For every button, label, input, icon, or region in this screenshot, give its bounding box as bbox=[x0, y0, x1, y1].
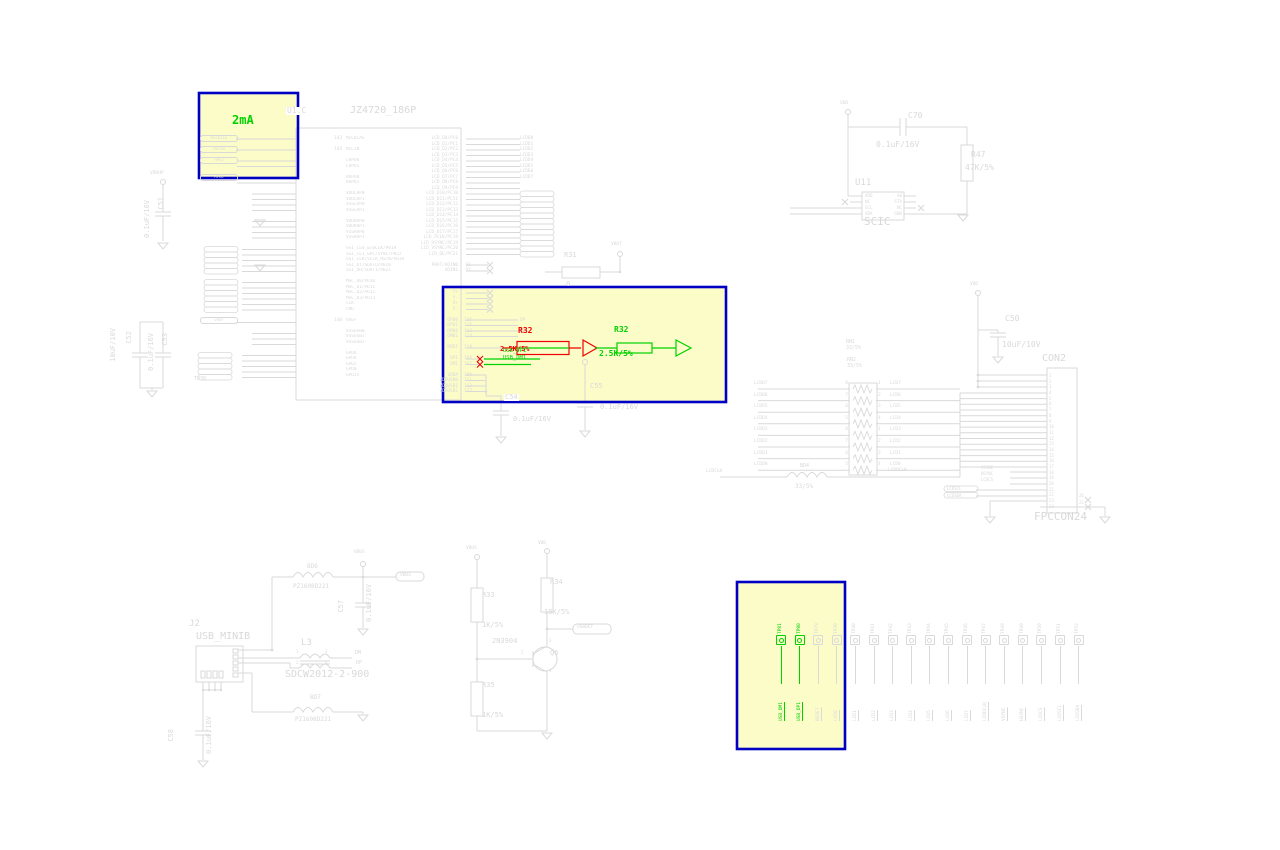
port-flag[interactable]: HPLO bbox=[200, 157, 238, 164]
u1-part[interactable]: JZ4720_186P bbox=[350, 106, 416, 116]
testpoint-net[interactable]: LCD1 bbox=[853, 685, 858, 721]
testpoint-ref: TP48 bbox=[1002, 610, 1007, 634]
net-label[interactable]: LCDD0 bbox=[754, 462, 832, 467]
r47-value[interactable]: 47K/5% bbox=[965, 164, 994, 172]
pin-name: LCD_D16/PC16 bbox=[340, 224, 458, 229]
pin-name: LCD_D6/PC6 bbox=[340, 169, 458, 174]
testpoint-ref: TP80 bbox=[798, 610, 803, 634]
testpoint-net[interactable]: LCDSDA bbox=[1076, 685, 1081, 721]
testpoint-wire bbox=[911, 646, 912, 684]
pin-number: 1 bbox=[876, 427, 890, 432]
testpoint-ref: TP39 bbox=[835, 610, 840, 634]
schematic-canvas[interactable]: MICBIAS 143 MICBIAS MICIN 144 MICIN HPLO… bbox=[0, 0, 1280, 850]
pin-name: DM00 bbox=[340, 329, 458, 334]
testpoint-wire bbox=[781, 646, 782, 684]
pin-number: 7 bbox=[832, 393, 850, 398]
pin-number: 106 bbox=[458, 356, 478, 361]
rn-row: LCDD2 7 2 LCD2 bbox=[754, 439, 960, 451]
testpoint-net[interactable]: LCD7 bbox=[965, 685, 970, 721]
pin-number: 3 bbox=[876, 451, 890, 456]
pin-number: 6 bbox=[832, 451, 850, 456]
testpoint-pad-icon[interactable] bbox=[776, 635, 786, 645]
c52-ref[interactable]: C52 bbox=[126, 331, 133, 344]
vdd-power-label: VDD bbox=[840, 102, 848, 107]
testpoint-ref: TP43 bbox=[909, 610, 914, 634]
c58-value[interactable]: 0.1uF/16V bbox=[206, 716, 213, 754]
testpoint-pad-icon[interactable] bbox=[1074, 635, 1084, 645]
c51-ref[interactable]: C51 bbox=[158, 197, 165, 210]
vbus-power-label: VBUS bbox=[354, 551, 365, 556]
c55-ref[interactable]: C55 bbox=[590, 383, 603, 390]
pin-name: LCD_D10/PC10 bbox=[340, 191, 458, 196]
pin-number: 11 bbox=[1049, 430, 1054, 436]
testpoint[interactable]: TP79 RESET bbox=[809, 610, 828, 721]
bd6-ref[interactable]: BD6 bbox=[307, 564, 318, 570]
port-flag[interactable]: MICBIAS bbox=[200, 135, 238, 142]
vbus-power-label: VBUS bbox=[466, 547, 477, 552]
testpoint[interactable]: TP49 HSYNC bbox=[1014, 610, 1033, 721]
u11-left-pins: VDDNCSCLSDA bbox=[865, 193, 873, 217]
testpoint-ref: TP45 bbox=[946, 610, 951, 634]
net-label[interactable]: LCDD3 bbox=[520, 153, 533, 158]
pin-name: X- bbox=[340, 307, 458, 312]
pin-number: 20 bbox=[1049, 481, 1054, 487]
pin-number: 4 bbox=[876, 416, 890, 421]
u11-wires bbox=[790, 116, 967, 214]
tp38-label[interactable]: TP38 bbox=[194, 377, 206, 382]
c53-ref[interactable]: C53 bbox=[162, 333, 169, 346]
testpoint-pad-icon[interactable] bbox=[962, 635, 972, 645]
c70-value[interactable]: 0.1uF/16V bbox=[876, 141, 919, 149]
net-label[interactable]: LCDD5 bbox=[754, 404, 832, 409]
u1-refdes[interactable]: U1.C bbox=[286, 107, 307, 115]
pin-name: LCD_D11/PC11 bbox=[340, 197, 458, 202]
rn-row: LCDD1 6 3 LCD1 bbox=[754, 451, 960, 463]
r34-ref[interactable]: R34 bbox=[550, 579, 563, 586]
pin-number: 117 bbox=[458, 389, 478, 394]
lcdscl-port-flag[interactable]: LCDSCL bbox=[947, 487, 961, 491]
testpoint-net[interactable]: LCDSCL bbox=[1058, 685, 1063, 721]
net-label[interactable]: LCD0 bbox=[890, 462, 960, 467]
hsync-net-label[interactable]: HSYNC bbox=[981, 472, 993, 476]
pin-number: 23 bbox=[1049, 498, 1054, 504]
testpoint-pad-icon[interactable] bbox=[999, 635, 1009, 645]
pin-number: 112 bbox=[458, 384, 478, 389]
c50-value[interactable]: 10uF/10V bbox=[1002, 341, 1041, 349]
lcdcs-net-label[interactable]: LCDCS bbox=[981, 478, 993, 482]
c57-value[interactable]: 0.1uF/16V bbox=[366, 584, 373, 622]
net-label[interactable]: LCD2 bbox=[890, 439, 960, 444]
testpoint[interactable]: TP51 LCDSCL bbox=[1051, 610, 1070, 721]
testpoint[interactable]: TP45 LCD6 bbox=[939, 610, 958, 721]
rn-row: LCDD6 7 2 LCD6 bbox=[754, 393, 960, 405]
testpoint-wire bbox=[836, 646, 837, 684]
testpoint[interactable]: TP48 VSYNC bbox=[995, 610, 1014, 721]
testpoint-wire bbox=[929, 646, 930, 684]
testpoint[interactable]: TP41 LCD2 bbox=[865, 610, 884, 721]
con2-part[interactable]: FPCCON24 bbox=[1034, 511, 1087, 522]
c58-ref[interactable]: C58 bbox=[168, 729, 175, 742]
pin-name: DP1 bbox=[340, 356, 458, 361]
testpoint[interactable]: TP50 LCDCS bbox=[1032, 610, 1051, 721]
testpoint[interactable]: TP52 LCDSDA bbox=[1069, 610, 1088, 721]
l3-pin2: 2 bbox=[296, 661, 298, 665]
vdd-power-label: VDD bbox=[970, 283, 978, 288]
pin-name: LCD_VSYNC/PC20 bbox=[340, 246, 458, 251]
net-label[interactable]: LCDD6 bbox=[520, 169, 533, 174]
testpoint-net[interactable]: LCD3 bbox=[890, 685, 895, 721]
pin-number: 1 bbox=[876, 381, 890, 386]
pin-name: LCD_D4/PC4 bbox=[340, 158, 458, 163]
pin-name: ADIN1 bbox=[340, 268, 458, 273]
testpoint-pad-icon[interactable] bbox=[850, 635, 860, 645]
testpoint-ref: TP42 bbox=[890, 610, 895, 634]
testpoint[interactable]: TP40 LCD1 bbox=[846, 610, 865, 721]
pin-name: LCD_D7/PC7 bbox=[340, 175, 458, 180]
net-label[interactable]: LCD4 bbox=[890, 416, 960, 421]
vdd-power-label: VDD bbox=[538, 542, 546, 547]
u11-ref[interactable]: U11 bbox=[855, 179, 871, 188]
testpoints-added: TP81 USB_DM1 TP80 USB_DP1 bbox=[772, 610, 809, 721]
con2-wires bbox=[935, 297, 1105, 516]
testpoint-ref: TP81 bbox=[779, 610, 784, 634]
bd6-coil bbox=[293, 573, 333, 578]
pin-name: DM01 bbox=[340, 334, 458, 339]
q6-pin-e: 1 bbox=[549, 669, 551, 673]
pin-number: 17 bbox=[1049, 464, 1054, 470]
c51-value[interactable]: 0.1uF/16V bbox=[144, 200, 151, 238]
pin-name: LCD_D14/PC14 bbox=[340, 213, 458, 218]
testpoint-wire bbox=[855, 646, 856, 684]
pin-name: DP00 bbox=[340, 318, 458, 323]
testpoint-ref: TP52 bbox=[1076, 610, 1081, 634]
rn-rows: LCDD7 8 1 LCD7 LCDD6 7 2 LCD6 LCDD5 6 3 … bbox=[754, 381, 960, 474]
testpoint[interactable]: TP46 LCD7 bbox=[958, 610, 977, 721]
rn1-value[interactable]: 33/5% bbox=[846, 346, 861, 351]
bd4-value[interactable]: 33/5% bbox=[795, 484, 813, 490]
net-label[interactable]: LCDD0 bbox=[520, 136, 533, 141]
pin-name: LCD_D2/PC2 bbox=[340, 147, 458, 152]
r34-value[interactable]: 10K/5% bbox=[544, 609, 569, 616]
testpoint-pad-icon[interactable] bbox=[943, 635, 953, 645]
net-label[interactable]: LCDD6 bbox=[754, 393, 832, 398]
pin-name: LCD_D17/PC17 bbox=[340, 230, 458, 235]
pin-name: X+ bbox=[340, 301, 458, 306]
testpoint-pad-icon[interactable] bbox=[813, 635, 823, 645]
testpoint-pad-icon[interactable] bbox=[1036, 635, 1046, 645]
testpoint-net[interactable]: HSYNC bbox=[1020, 685, 1025, 721]
dp-net-label[interactable]: DP bbox=[356, 661, 362, 666]
c70-ref[interactable]: C70 bbox=[908, 112, 922, 120]
r33-value[interactable]: 1K/5% bbox=[482, 622, 503, 629]
pin-number: 114 bbox=[458, 334, 478, 339]
testpoint-ref: TP46 bbox=[965, 610, 970, 634]
l3-pin4: 4 bbox=[325, 661, 327, 665]
j2-ref[interactable]: J2 bbox=[189, 620, 200, 629]
pin-number: 113 bbox=[458, 329, 478, 334]
pin-name: DM1 bbox=[340, 362, 458, 367]
bd6-value[interactable]: PZ1608D221 bbox=[293, 584, 329, 590]
pin-number: 5 bbox=[832, 416, 850, 421]
r35-ref[interactable]: R35 bbox=[482, 682, 495, 689]
testpoint-ref: TP49 bbox=[1021, 610, 1026, 634]
current-annotation[interactable]: 2mA bbox=[232, 114, 254, 126]
net-label[interactable]: LCDD4 bbox=[754, 416, 832, 421]
l3-pin1: 1 bbox=[296, 650, 298, 654]
testpoint-pad-icon[interactable] bbox=[869, 635, 879, 645]
rn-row: LCDD0 5 4 LCD0 bbox=[754, 462, 960, 474]
pin-number: 2 bbox=[876, 439, 890, 444]
testpoint-ref: TP51 bbox=[1058, 610, 1063, 634]
net-label[interactable]: LCDD1 bbox=[520, 142, 533, 147]
u11-part[interactable]: SCIC bbox=[864, 216, 891, 227]
c57-ref[interactable]: C57 bbox=[338, 600, 345, 613]
testpoint-ref: TP79 bbox=[816, 610, 821, 634]
port-flag[interactable]: VREF bbox=[200, 317, 238, 324]
r31-ref[interactable]: R31 bbox=[564, 252, 577, 259]
bd4-ref[interactable]: BD4 bbox=[800, 464, 809, 469]
added-r32-ref[interactable]: R32 bbox=[614, 326, 628, 334]
pin-name: LCD_PCLK/PC18 bbox=[340, 235, 458, 240]
r47-ref[interactable]: R47 bbox=[971, 151, 985, 159]
c53-value[interactable]: 0.1uF/16V bbox=[148, 333, 155, 371]
net-label[interactable]: LCDD7 bbox=[520, 175, 533, 180]
testpoint-ref: TP44 bbox=[928, 610, 933, 634]
testpoint-net[interactable]: USB_DM1 bbox=[779, 685, 784, 721]
testpoint-net[interactable]: LCD5 bbox=[927, 685, 932, 721]
pin-number: 111 bbox=[458, 378, 478, 383]
pin-name: Y+ bbox=[340, 290, 458, 295]
r33-ref[interactable]: R33 bbox=[482, 592, 495, 599]
pin-number: 3 bbox=[876, 404, 890, 409]
vsync-net-label[interactable]: VSYNC bbox=[981, 466, 993, 470]
testpoint-pad-icon[interactable] bbox=[906, 635, 916, 645]
vbus-port-flag[interactable]: VBUS bbox=[400, 574, 411, 579]
net-label[interactable]: LCDD5 bbox=[520, 164, 533, 169]
dm-net-label[interactable]: DM bbox=[355, 651, 361, 656]
pin-name: LCD_D0/PC0 bbox=[340, 136, 458, 141]
added-net2-label[interactable]: USB_DM1 bbox=[503, 356, 526, 362]
rn-row: LCDD4 5 4 LCD4 bbox=[754, 416, 960, 428]
removed-r32-ref[interactable]: R32 bbox=[518, 327, 532, 335]
lcdsda-port-flag[interactable]: LCDSDA bbox=[947, 494, 961, 498]
net-label[interactable]: LCDD2 bbox=[754, 439, 832, 444]
schematic-drawing bbox=[0, 0, 1280, 850]
pin-number: 92 bbox=[458, 263, 478, 268]
testpoint-net[interactable]: LCDCS bbox=[1039, 685, 1044, 721]
testpoint[interactable]: TP47 LCDDCLK bbox=[976, 610, 995, 721]
pin-name: LCD_D1/PC1 bbox=[340, 142, 458, 147]
testpoint-net[interactable]: USB_DP1 bbox=[797, 685, 802, 721]
q6-pin-c: 3 bbox=[549, 639, 551, 643]
net-label[interactable]: LCDD3 bbox=[754, 427, 832, 432]
ic-right-pin-row: VDDUSB2 117 bbox=[340, 389, 590, 395]
pin-name: DP01 bbox=[340, 323, 458, 328]
net-label[interactable]: LCD3 bbox=[890, 427, 960, 432]
q6-pin-b: 2 bbox=[521, 651, 523, 655]
pin-name: LCD_HSYNC/PC19 bbox=[340, 241, 458, 246]
testpoint-ref: TP50 bbox=[1039, 610, 1044, 634]
pin-name: LCD_D15/PC15 bbox=[340, 219, 458, 224]
con2-pin26: 26 bbox=[1079, 494, 1084, 498]
pin-number: 14 bbox=[1049, 447, 1054, 453]
testpoint[interactable]: TP42 LCD3 bbox=[883, 610, 902, 721]
pin-number: 116 bbox=[458, 323, 478, 328]
r35-value[interactable]: 1K/5% bbox=[482, 712, 503, 719]
pin-name: VDDA bbox=[340, 373, 458, 378]
testpoint-wire bbox=[892, 646, 893, 684]
testpoint-net[interactable]: LCD6 bbox=[946, 685, 951, 721]
testpoint-pad-icon[interactable] bbox=[981, 635, 991, 645]
port-flag[interactable]: HPRO bbox=[200, 174, 238, 181]
pin-number: 107 bbox=[458, 362, 478, 367]
testpoint-wire bbox=[818, 646, 819, 684]
c50-ref[interactable]: C50 bbox=[1005, 315, 1019, 323]
testpoint-wire bbox=[985, 646, 986, 684]
lcddclk-net-label[interactable]: LCDDCLK bbox=[888, 469, 907, 474]
added-r32-value[interactable]: 2.5K/5% bbox=[599, 350, 633, 358]
bd7-ref[interactable]: BD7 bbox=[310, 695, 321, 701]
pin-number: 8 bbox=[832, 427, 850, 432]
testpoints-ghost: TP79 RESET TP39 LCD0 TP40 LCD1 TP41 LCD2… bbox=[809, 610, 1088, 721]
vddhp-power-label: VDDHP bbox=[150, 172, 164, 177]
net-label[interactable]: LCDD1 bbox=[754, 451, 832, 456]
pin-name: VDDUSB0 bbox=[340, 378, 458, 383]
port-flag[interactable]: MICIN bbox=[200, 146, 238, 153]
pin-number: 8 bbox=[832, 381, 850, 386]
testpoint-wire bbox=[967, 646, 968, 684]
pin-number: 7 bbox=[832, 439, 850, 444]
testpoint-pad-icon[interactable] bbox=[1018, 635, 1028, 645]
testpoint-wire bbox=[1060, 646, 1061, 684]
net-label[interactable]: LCD6 bbox=[890, 393, 960, 398]
pin-name: LCD_D5/PC5 bbox=[340, 164, 458, 169]
pin-number: 24 bbox=[1049, 504, 1054, 510]
pin-number: 2 bbox=[876, 393, 890, 398]
l3-part[interactable]: SDCW2012-2-900 bbox=[285, 670, 369, 680]
l3-ref[interactable]: L3 bbox=[301, 639, 312, 648]
testpoint-wire bbox=[1022, 646, 1023, 684]
pin-name: VDDUSB1 bbox=[340, 384, 458, 389]
u11-right-pins: A0STANCGND bbox=[884, 193, 902, 217]
testpoint-pad-icon[interactable] bbox=[1055, 635, 1065, 645]
pin-number: 110 bbox=[458, 345, 478, 350]
j2-pads bbox=[201, 649, 238, 678]
rn2-value[interactable]: 33/5% bbox=[847, 364, 862, 369]
testpoint-net[interactable]: RESET bbox=[816, 685, 821, 721]
l3-pin3: 3 bbox=[325, 650, 327, 654]
testpoint-wire bbox=[874, 646, 875, 684]
testpoint[interactable]: TP39 LCD0 bbox=[828, 610, 847, 721]
rn-row: LCDD7 8 1 LCD7 bbox=[754, 381, 960, 393]
con2-ref[interactable]: CON2 bbox=[1042, 354, 1066, 364]
net-label[interactable]: DP bbox=[520, 318, 525, 323]
pin-name: LCD_DE/PC21 bbox=[340, 252, 458, 257]
lcdclk-net-label[interactable]: LCDCLK bbox=[706, 470, 722, 475]
testpoint[interactable]: TP44 LCD5 bbox=[921, 610, 940, 721]
testpoint-wire bbox=[948, 646, 949, 684]
added-net1-label[interactable]: USB_DP1 bbox=[503, 349, 526, 355]
net-label[interactable]: LCDD4 bbox=[520, 158, 533, 163]
pin-name: LCD_D13/PC13 bbox=[340, 208, 458, 213]
testpoint-net[interactable]: LCD2 bbox=[872, 685, 877, 721]
pin-name: LCD_D3/PC3 bbox=[340, 153, 458, 158]
c52-value[interactable]: 10uF/10V bbox=[110, 328, 117, 362]
pin-name: RREF bbox=[340, 345, 458, 350]
rn-row: LCDD3 8 1 LCD3 bbox=[754, 427, 960, 439]
c55-value[interactable]: 0.1uF/16V bbox=[600, 404, 638, 411]
q6-part[interactable]: 2N3904 bbox=[492, 638, 517, 645]
testpoint-wire bbox=[1041, 646, 1042, 684]
testpoint[interactable]: TP80 USB_DP1 bbox=[791, 610, 810, 721]
testpoint-net[interactable]: LCDDCLK bbox=[983, 685, 988, 721]
testpoint-ref: TP40 bbox=[853, 610, 858, 634]
net-label[interactable]: LCDD2 bbox=[520, 147, 533, 152]
vbat-power-label: VBAT bbox=[611, 243, 622, 248]
con2-pin25: 25 bbox=[1079, 501, 1084, 505]
r31-value[interactable]: 0 bbox=[566, 281, 570, 288]
testpoint-net[interactable]: LCD0 bbox=[834, 685, 839, 721]
con2-pin-numbers: 123456789101112131415161718192021222324 bbox=[1049, 373, 1054, 510]
net-label[interactable]: LCDD7 bbox=[754, 381, 832, 386]
net-label[interactable]: LCD1 bbox=[890, 451, 960, 456]
net-label[interactable]: LCD7 bbox=[890, 381, 960, 386]
testpoint-pad-icon[interactable] bbox=[795, 635, 805, 645]
c54-value[interactable]: 0.1uF/16V bbox=[513, 416, 551, 423]
testpoint-net[interactable]: LCD4 bbox=[909, 685, 914, 721]
testpoint-wire bbox=[1078, 646, 1079, 684]
bd7-coil bbox=[293, 708, 333, 713]
bd7-value[interactable]: PZ1608D221 bbox=[295, 717, 331, 723]
pin-name: PBAT/ADIN0 bbox=[340, 263, 458, 268]
pin-number: 6 bbox=[832, 404, 850, 409]
usbdet-port-flag[interactable]: USBDET bbox=[577, 626, 593, 631]
testpoint-wire bbox=[1004, 646, 1005, 684]
j2-part[interactable]: USB_MINIB bbox=[196, 632, 250, 642]
rn-row: LCDD5 6 3 LCD5 bbox=[754, 404, 960, 416]
testpoint-pad-icon[interactable] bbox=[888, 635, 898, 645]
ic-right-pin-rows: LCD_D0/PC0 LCDD0 LCD_D1/PC1 LCDD1 LCD_D2… bbox=[340, 136, 590, 395]
pin-name: LCD_D8/PC8 bbox=[340, 180, 458, 185]
pin-number: 5 bbox=[832, 462, 850, 467]
testpoint-ref: TP41 bbox=[872, 610, 877, 634]
pin-name: LCD_D12/PC12 bbox=[340, 202, 458, 207]
q6-ref[interactable]: Q6 bbox=[550, 650, 558, 657]
testpoint-pad-icon[interactable] bbox=[832, 635, 842, 645]
testpoint[interactable]: TP81 USB_DM1 bbox=[772, 610, 791, 721]
testpoint[interactable]: TP43 LCD4 bbox=[902, 610, 921, 721]
testpoint-wire bbox=[799, 646, 800, 684]
c54-ref[interactable]: C54 bbox=[504, 394, 519, 401]
net-label[interactable]: LCD5 bbox=[890, 404, 960, 409]
pin-number: 115 bbox=[458, 318, 478, 323]
pin-name: LCD_D9/PC9 bbox=[340, 186, 458, 191]
pin-number: 4 bbox=[876, 462, 890, 467]
pin-name: VDDUSB2 bbox=[340, 389, 458, 394]
testpoint-ref: TP47 bbox=[983, 610, 988, 634]
testpoint-net[interactable]: VSYNC bbox=[1002, 685, 1007, 721]
testpoint-pad-icon[interactable] bbox=[925, 635, 935, 645]
pin-number: 93 bbox=[458, 268, 478, 273]
pin-number: 109 bbox=[458, 373, 478, 378]
pin-name: Y- bbox=[340, 296, 458, 301]
